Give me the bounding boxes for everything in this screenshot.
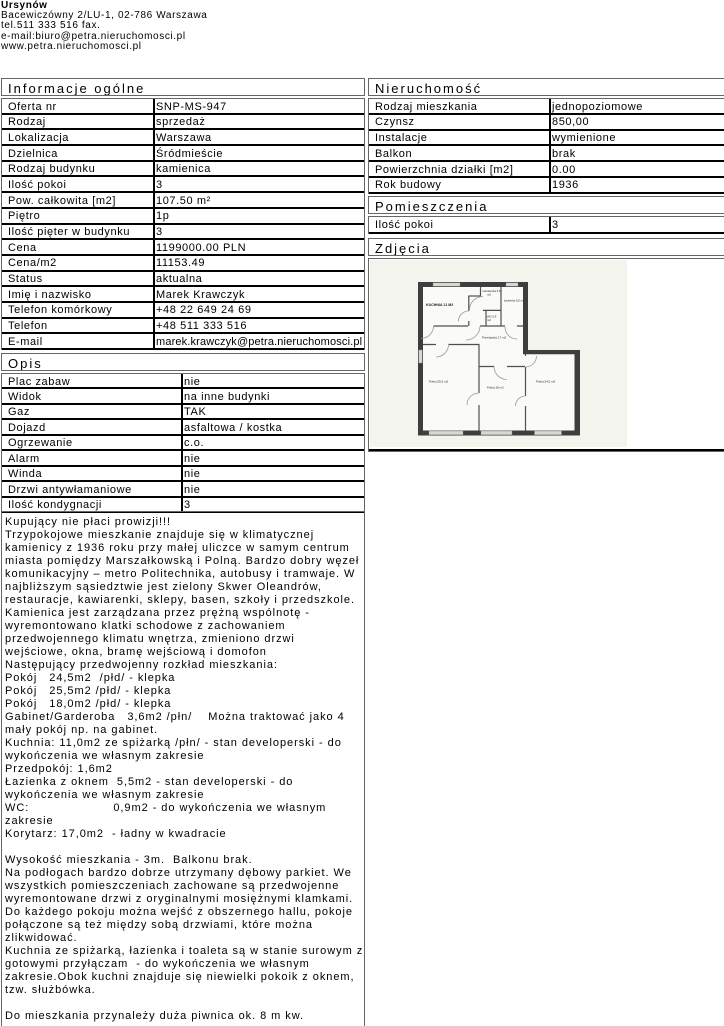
svg-text:Pokój 24,5 m2: Pokój 24,5 m2 [536, 380, 556, 384]
svg-text:m2: m2 [487, 293, 491, 297]
svg-text:Pokój 25,5 m2: Pokój 25,5 m2 [429, 380, 449, 384]
svg-text:KUCHNIA 11 M2: KUCHNIA 11 M2 [426, 303, 453, 307]
svg-text:Łazienka 5,5 m2: Łazienka 5,5 m2 [504, 299, 525, 303]
svg-text:m2: m2 [487, 318, 491, 322]
svg-text:Przedpokój 17 m2: Przedpokój 17 m2 [482, 336, 507, 340]
svg-text:Pokój 18 m2: Pokój 18 m2 [487, 386, 504, 390]
svg-text:Garderoba 3,6: Garderoba 3,6 [483, 289, 501, 293]
